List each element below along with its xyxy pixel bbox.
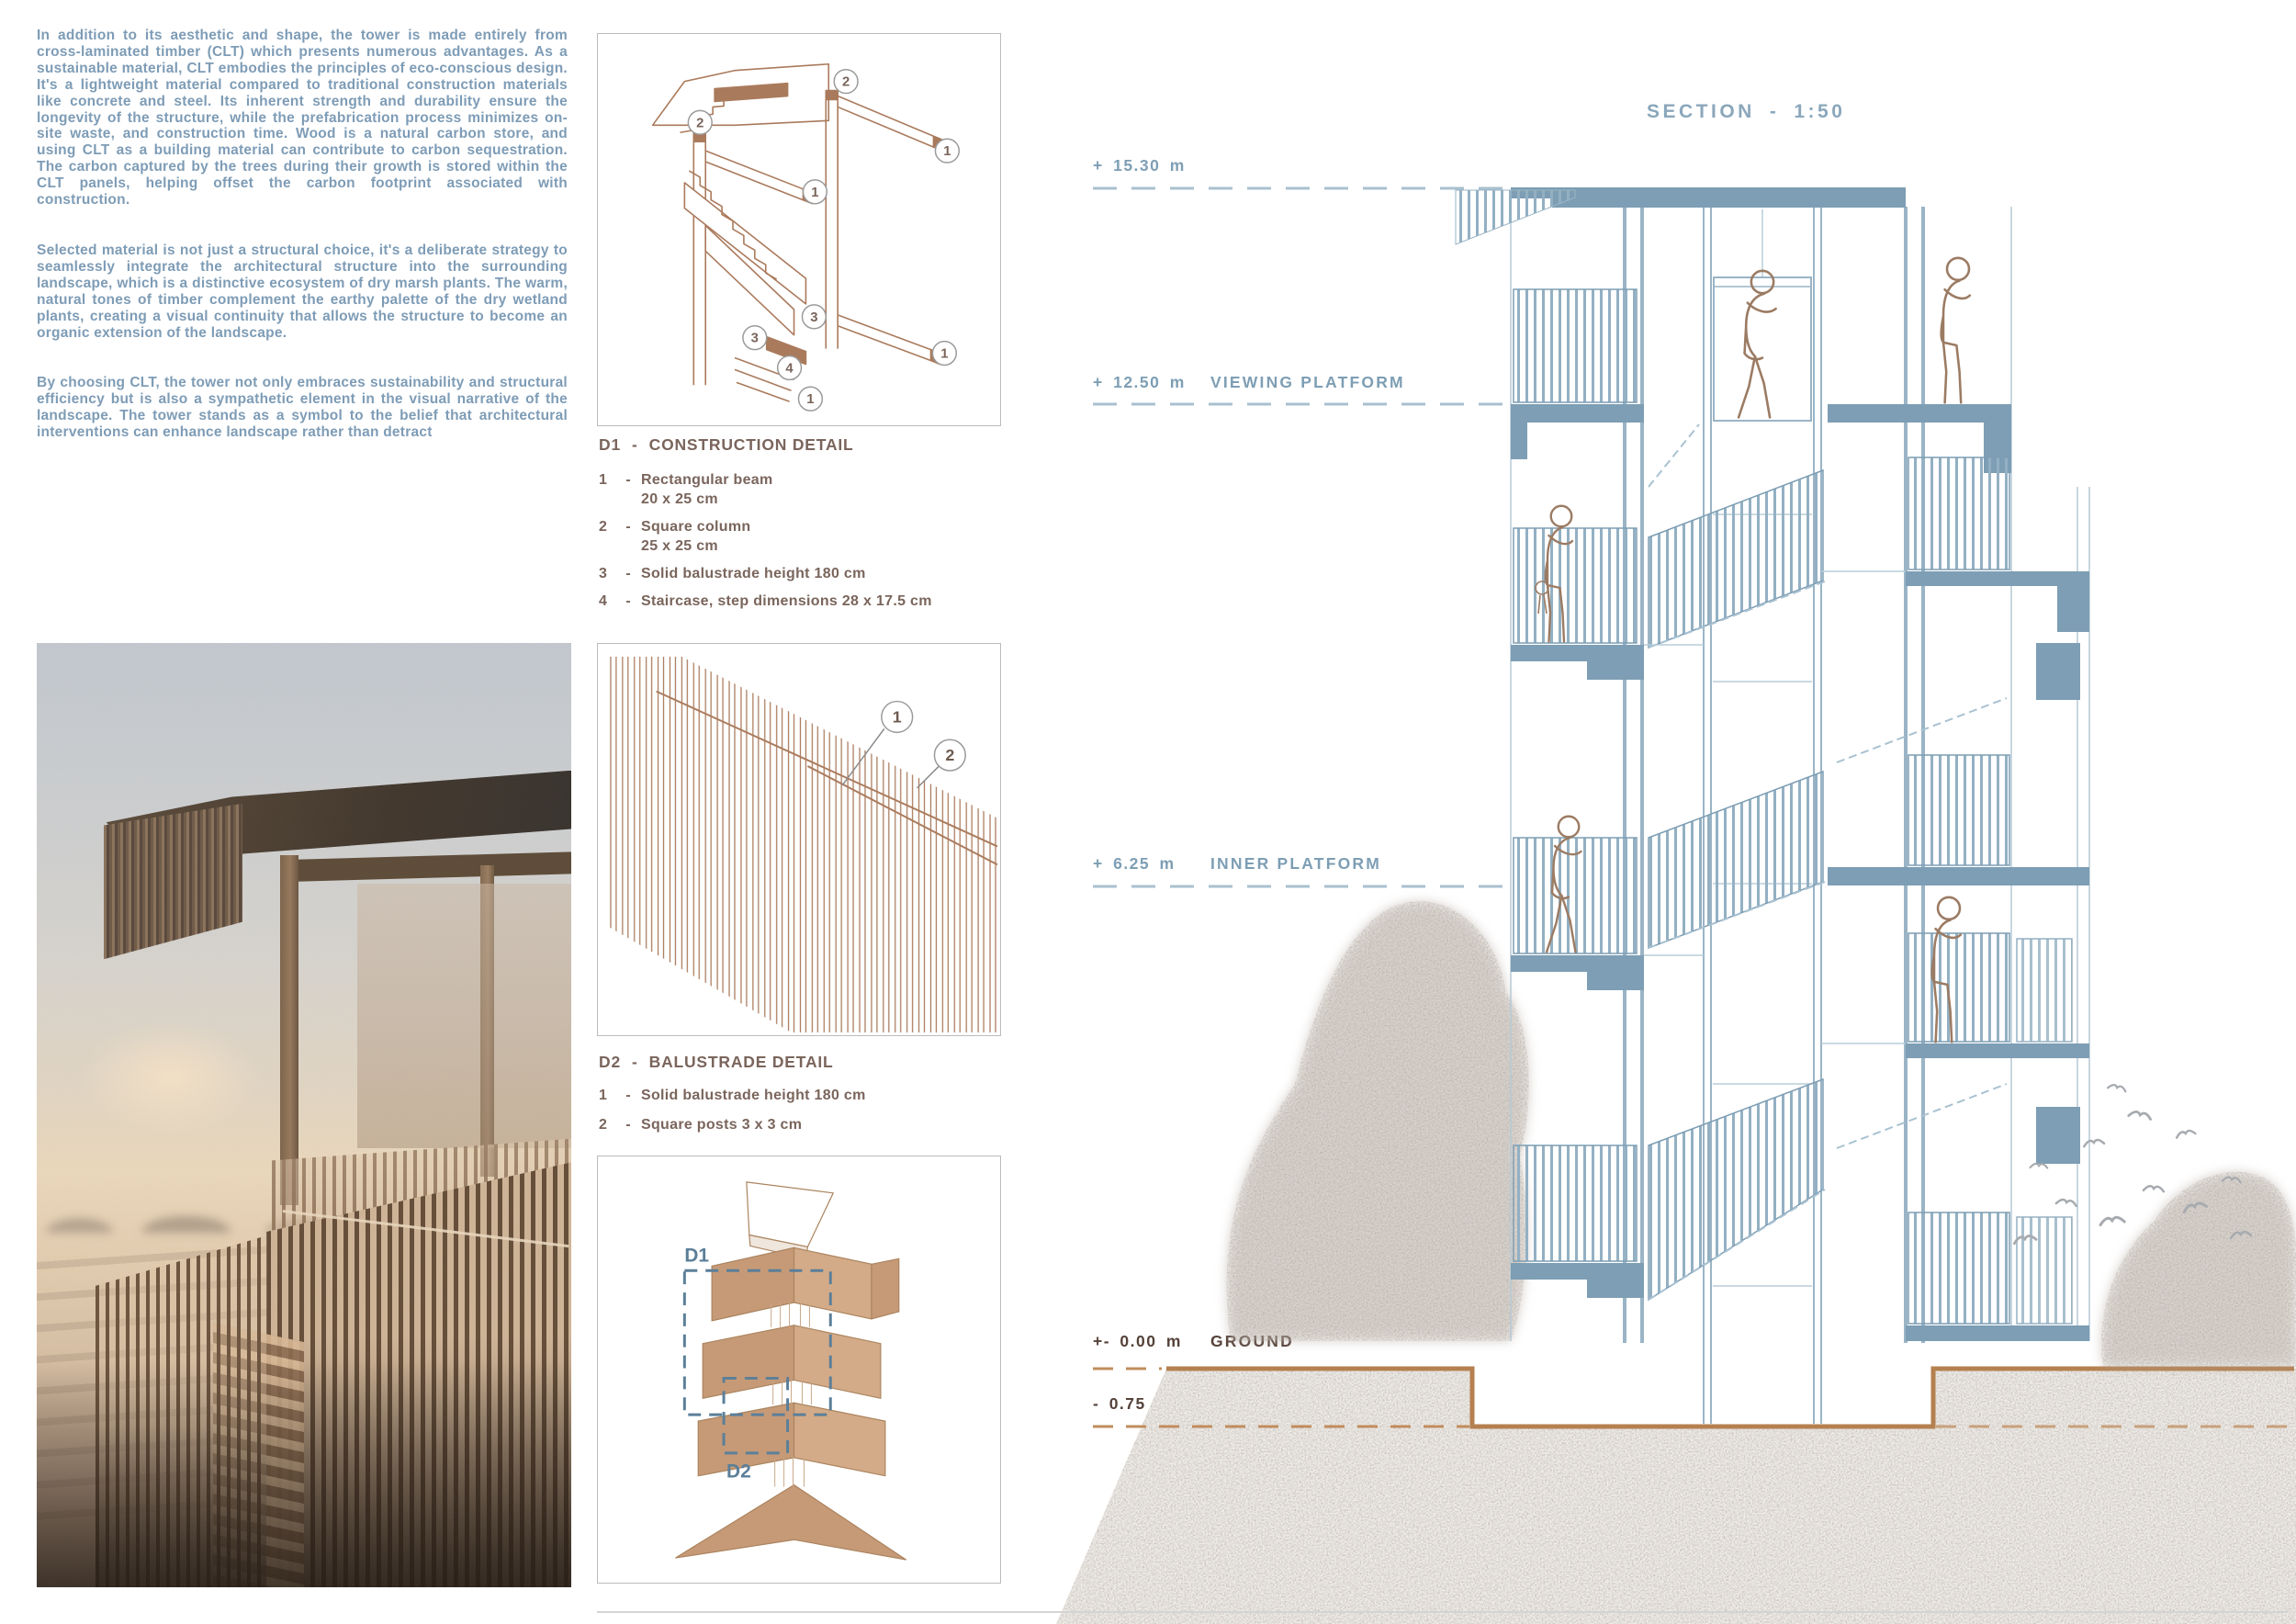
d2-item-1: 1-Solid balustrade height 180 cm [599, 1086, 866, 1105]
svg-text:2: 2 [696, 116, 703, 130]
intro-paragraph-2: Selected material is not just a structur… [37, 242, 568, 341]
d1-dash: - [632, 435, 638, 455]
intro-text-block: In addition to its aesthetic and shape, … [37, 28, 568, 475]
d1-item-3: 3-Solid balustrade height 180 cm [599, 564, 866, 583]
d1-item-2: 2-Square column 25 x 25 cm [599, 517, 750, 556]
d1-heading: D1 - CONSTRUCTION DETAIL [599, 435, 854, 455]
left-column [693, 132, 705, 385]
d1-code: D1 [599, 435, 621, 455]
axon-d2-label: D2 [726, 1461, 751, 1483]
d2-title: BALUSTRADE DETAIL [649, 1053, 834, 1072]
beam-2 [705, 151, 812, 204]
svg-text:1: 1 [806, 392, 814, 407]
svg-text:4: 4 [785, 361, 793, 376]
d2-item-2: 2-Square posts 3 x 3 cm [599, 1115, 802, 1134]
vegetation-right [2101, 1172, 2296, 1367]
photo-sun-glow [80, 1021, 262, 1133]
svg-text:1: 1 [940, 347, 948, 362]
svg-text:1: 1 [811, 186, 818, 200]
beam-1 [838, 96, 942, 152]
svg-text:3: 3 [810, 310, 817, 325]
tan-band-2 [703, 1325, 881, 1398]
photo-bottom-shadow [37, 1360, 571, 1587]
tower-render-photo [37, 643, 571, 1587]
svg-text:1: 1 [893, 707, 902, 726]
photo-timber-column [280, 855, 298, 1204]
right-column [826, 91, 838, 349]
svg-text:2: 2 [842, 75, 850, 90]
axon-d1-label: D1 [684, 1245, 709, 1266]
balustrade-slats [605, 657, 999, 1032]
d1-detail-drawing: 2 2 1 1 3 3 4 1 1 [598, 34, 999, 424]
d2-detail-box: 1 2 [597, 643, 1001, 1036]
roof-stair-slats [1456, 190, 1575, 244]
intro-paragraph-1: In addition to its aesthetic and shape, … [37, 28, 568, 209]
d1-item-4: 4-Staircase, step dimensions 28 x 17.5 c… [599, 592, 932, 611]
beam-3 [838, 315, 940, 365]
intro-paragraph-3: By choosing CLT, the tower not only embr… [37, 375, 568, 441]
d2-detail-drawing: 1 2 [598, 644, 999, 1034]
elevator-cab [1714, 277, 1811, 421]
tan-band-1 [712, 1247, 899, 1320]
svg-text:3: 3 [751, 332, 759, 346]
svg-text:2: 2 [945, 746, 954, 764]
d2-code: D2 [599, 1053, 621, 1072]
d2-dash: - [632, 1053, 638, 1072]
photo-glazing [357, 884, 571, 1148]
d1-detail-box: 2 2 1 1 3 3 4 1 1 [597, 33, 1001, 426]
base-flare [675, 1485, 906, 1560]
roof [1456, 187, 1906, 244]
underground-mass [1056, 1369, 2296, 1624]
d2-heading: D2 - BALUSTRADE DETAIL [599, 1053, 834, 1072]
d1-title: CONSTRUCTION DETAIL [649, 435, 854, 455]
tower-section [1456, 187, 2089, 1424]
figure-standing-platform [1941, 258, 1970, 403]
svg-text:1: 1 [943, 144, 951, 159]
vegetation-left [1226, 901, 1528, 1341]
d1-item-1: 1-Rectangular beam 20 x 25 cm [599, 470, 773, 509]
blue-datum-lines [1093, 188, 1506, 886]
axon-key-box: D1 D2 [597, 1156, 1001, 1584]
bottom-divider [597, 1611, 2289, 1613]
axon-tower-drawing: D1 D2 [598, 1156, 999, 1582]
presentation-board: In addition to its aesthetic and shape, … [0, 0, 2296, 1624]
section-drawing [1038, 0, 2296, 1624]
